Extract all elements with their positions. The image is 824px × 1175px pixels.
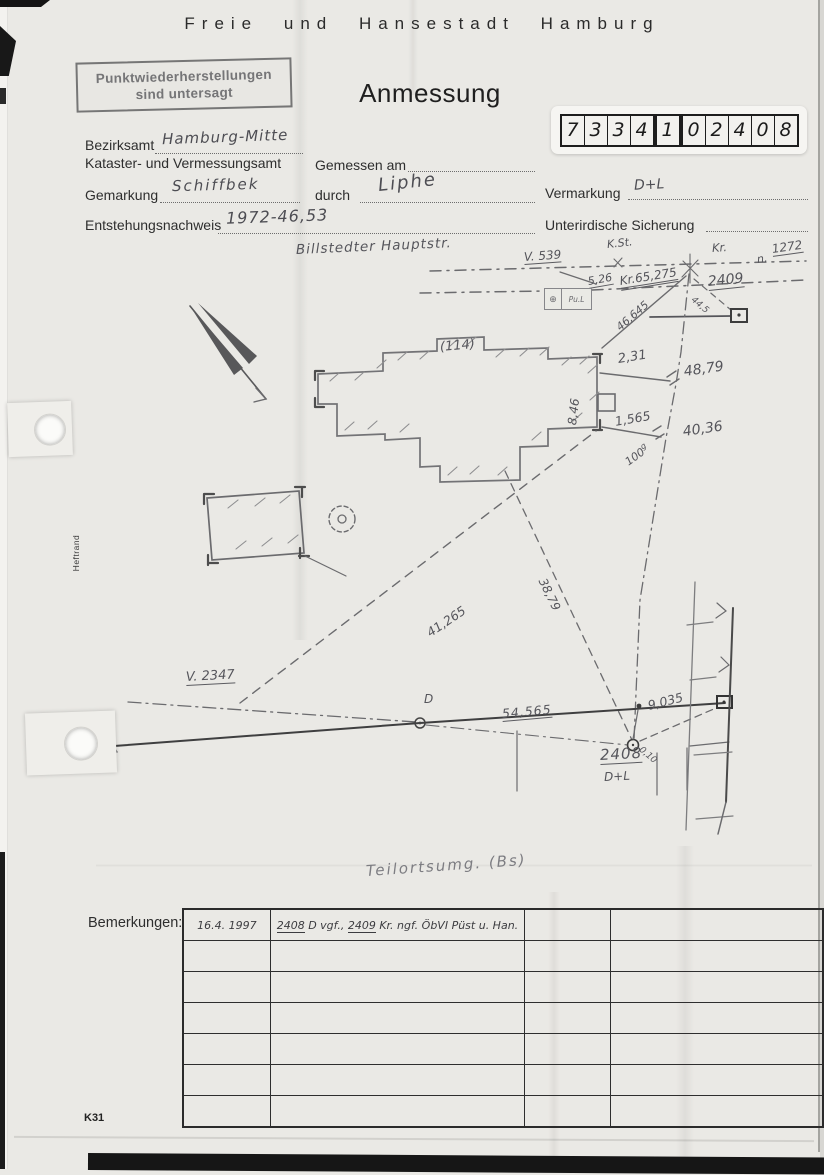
remarks-label: Bemerkungen:: [88, 915, 182, 931]
marker-type-dl-label: D+L: [604, 769, 631, 784]
remarks-row: [183, 972, 823, 1003]
house-number-label: (114): [439, 337, 475, 355]
remark-empty-cell: [611, 972, 823, 1003]
point-symbol-box: ⊕ Pu.L: [544, 288, 592, 310]
remark-empty-cell: [270, 1034, 524, 1065]
point-v2347-label: V. 2347: [186, 667, 236, 686]
punch-hole: [63, 726, 98, 761]
n-prefix-label: n.: [756, 252, 768, 266]
remark-empty-cell: [611, 1065, 823, 1096]
remark-empty-cell: [183, 972, 270, 1003]
remark-empty-cell: [611, 1096, 823, 1128]
remark-empty-cell: [183, 1003, 270, 1034]
point-v539-label: V. 539: [523, 247, 561, 265]
remarks-table: 16.4. 1997 2408 D vgf., 2409 Kr. ngf. Öb…: [182, 908, 824, 1128]
kst-label: K.St.: [606, 235, 633, 251]
scan-bottom-band: [88, 1153, 824, 1175]
remark-empty-cell: [183, 1096, 270, 1128]
remark-empty-cell: [525, 1065, 611, 1096]
remark-empty-cell: [525, 941, 611, 972]
remark-empty-cell: [270, 1065, 524, 1096]
remark-date-cell: 16.4. 1997: [183, 909, 270, 941]
remark-empty-cell: [611, 1034, 823, 1065]
point-d-label: D: [424, 692, 433, 706]
remark-text-cell: 2408 D vgf., 2409 Kr. ngf. ÖbVI Püst u. …: [270, 909, 524, 941]
remark-empty-cell: [270, 1096, 524, 1128]
remarks-row: [183, 1065, 823, 1096]
point-symbol-icon: ⊕: [545, 289, 562, 309]
remark-text-rest: Kr. ngf. ÖbVI Püst u. Han.: [376, 919, 518, 932]
remark-empty-cell: [525, 1003, 611, 1034]
remark-empty-cell: [525, 1034, 611, 1065]
binder-tab: [25, 710, 117, 775]
point-symbol-text: Pu.L: [562, 289, 591, 309]
remark-empty-cell: [611, 941, 823, 972]
remark-empty-cell: [183, 1034, 270, 1065]
remark-empty-cell: [611, 909, 823, 941]
remarks-row: [183, 1096, 823, 1128]
remarks-row: [183, 1003, 823, 1034]
remarks-row: [183, 941, 823, 972]
binder-tab: [7, 401, 73, 457]
remark-empty-cell: [270, 941, 524, 972]
remark-text-mid: D vgf.,: [305, 919, 348, 932]
remark-empty-cell: [525, 1096, 611, 1128]
point-2408-label: 2408: [600, 744, 643, 765]
remark-empty-cell: [183, 941, 270, 972]
scanned-survey-document: { "page": { "header": "Freie und Hansest…: [0, 0, 824, 1169]
remark-empty-cell: [525, 972, 611, 1003]
remark-empty-cell: [270, 1003, 524, 1034]
heftrand-margin-label: Heftrand: [71, 523, 81, 583]
remarks-row: [183, 1034, 823, 1065]
remark-empty-cell: [270, 972, 524, 1003]
remark-empty-cell: [183, 1065, 270, 1096]
remarks-row: 16.4. 1997 2408 D vgf., 2409 Kr. ngf. Öb…: [183, 909, 823, 941]
remark-empty-cell: [525, 909, 611, 941]
punch-hole: [33, 413, 66, 446]
remark-empty-cell: [611, 1003, 823, 1034]
form-code-label: K31: [84, 1112, 104, 1124]
kr-label: Kr.: [712, 240, 728, 255]
remark-point-2408: 2408: [277, 919, 305, 933]
remark-point-2409: 2409: [348, 919, 376, 933]
